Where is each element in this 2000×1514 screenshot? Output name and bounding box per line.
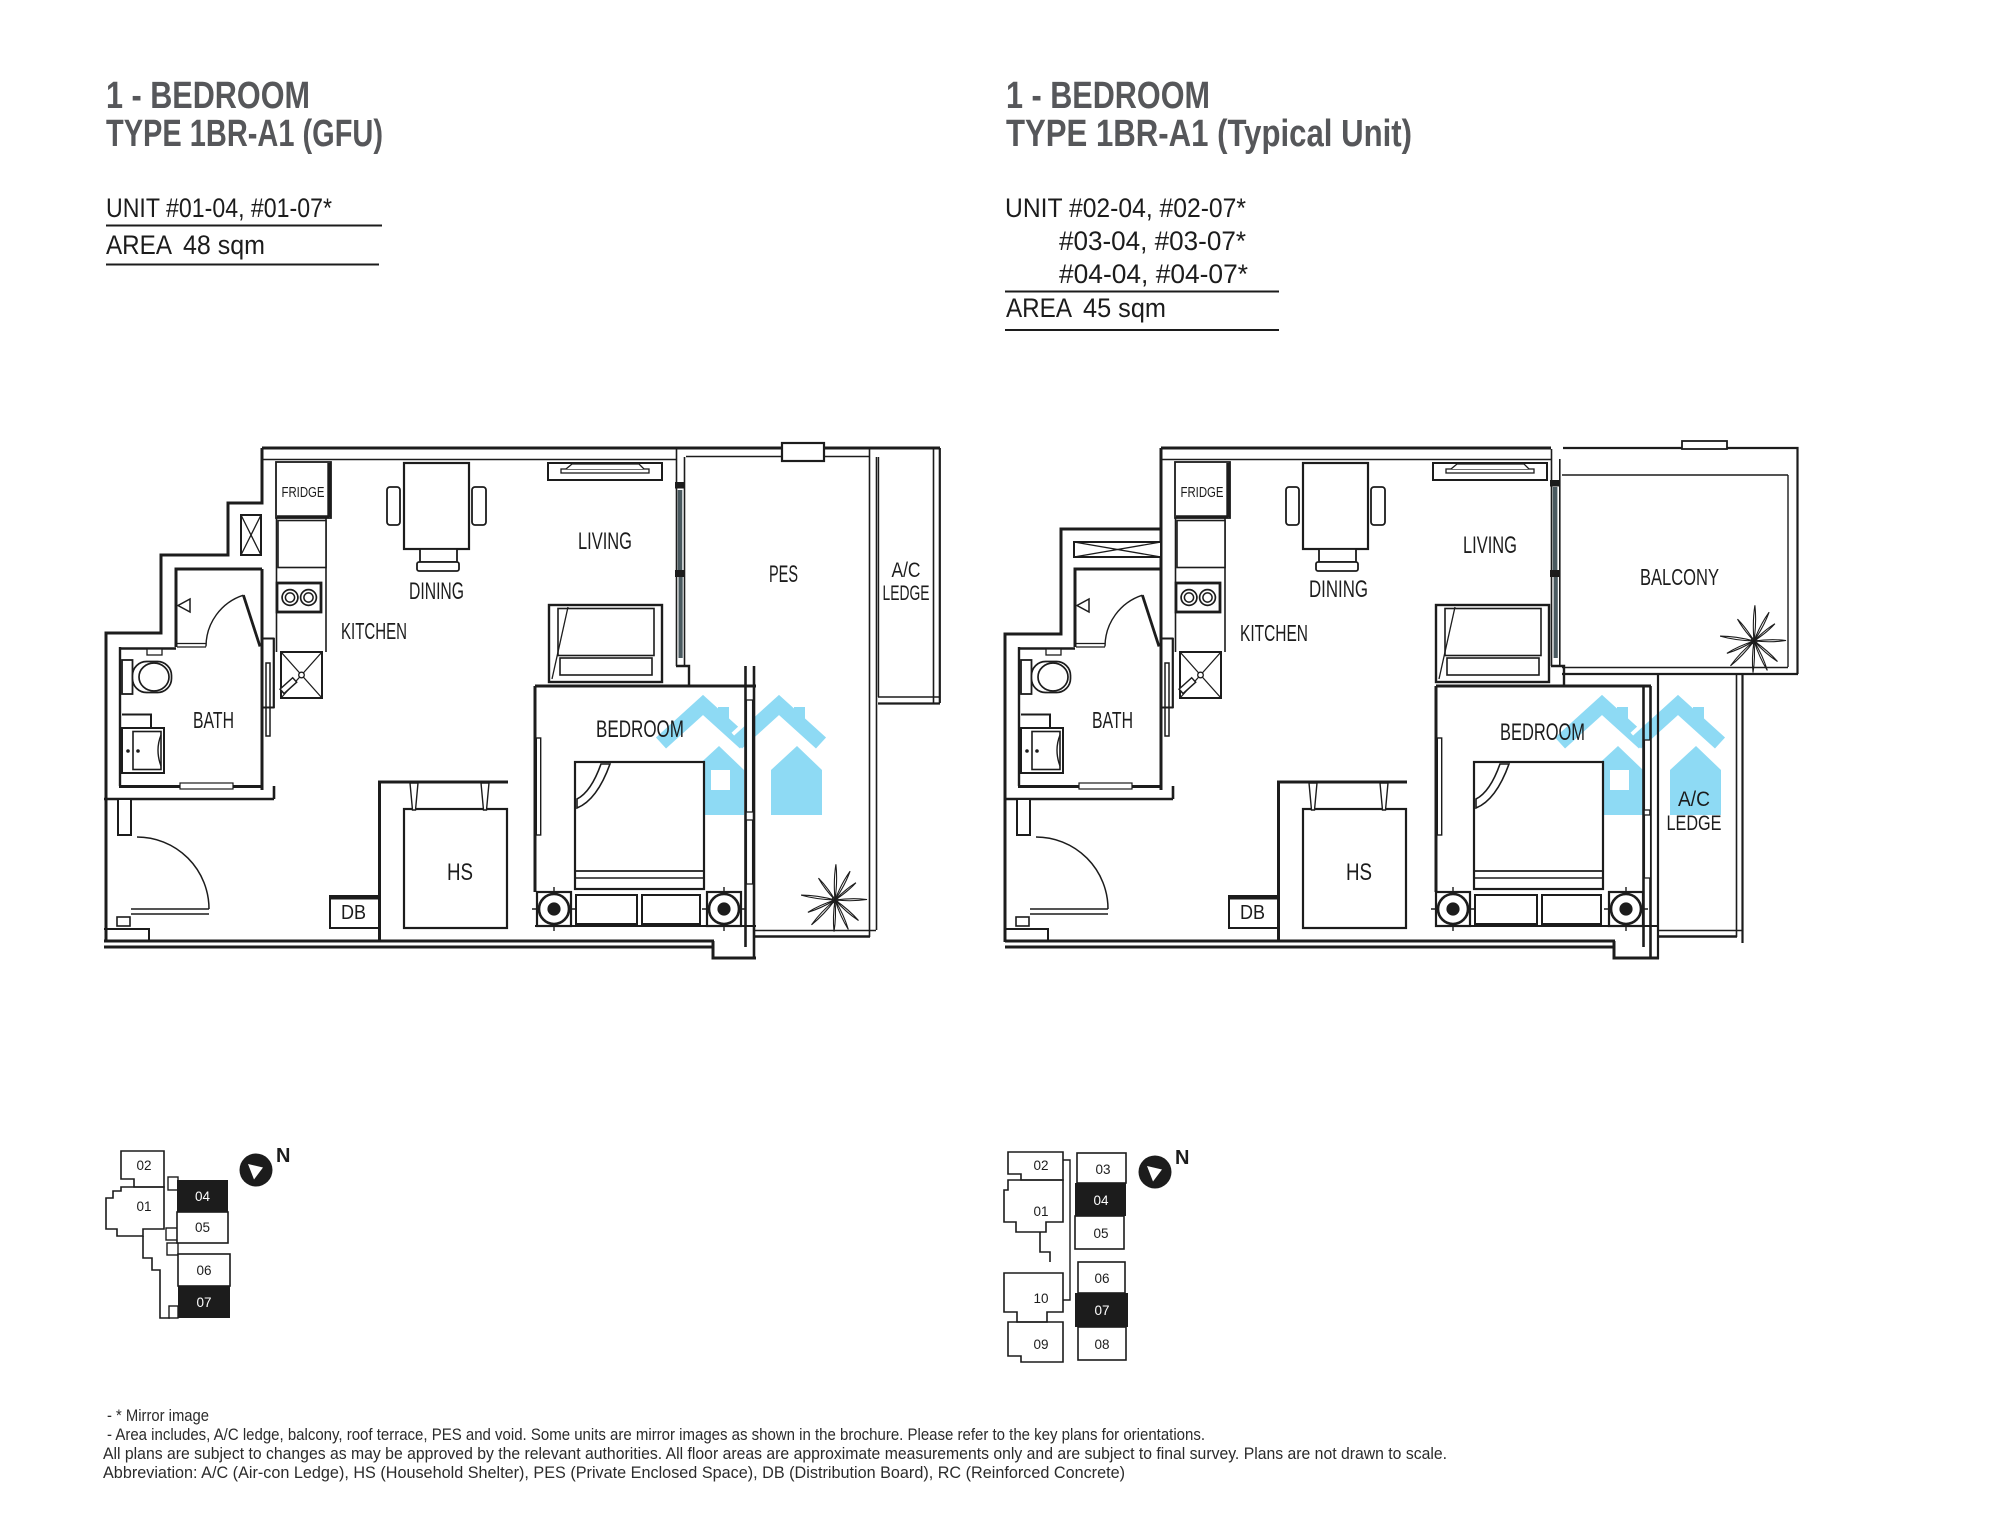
svg-text:DB: DB (341, 902, 366, 924)
svg-text:KITCHEN: KITCHEN (341, 618, 407, 644)
svg-text:1 - BEDROOM: 1 - BEDROOM (1006, 75, 1210, 117)
svg-text:UNIT #01-04, #01-07*: UNIT #01-04, #01-07* (106, 193, 332, 223)
svg-text:LIVING: LIVING (578, 528, 632, 555)
svg-text:- * Mirror image: - * Mirror image (107, 1406, 209, 1425)
svg-text:A/C: A/C (1678, 788, 1710, 811)
svg-text:LEDGE: LEDGE (883, 582, 930, 605)
svg-text:48 sqm: 48 sqm (183, 230, 265, 260)
svg-text:LIVING: LIVING (1463, 532, 1517, 559)
svg-text:07: 07 (1094, 1303, 1109, 1318)
svg-text:LEDGE: LEDGE (1667, 812, 1722, 835)
svg-text:DB: DB (1240, 902, 1265, 924)
svg-text:BEDROOM: BEDROOM (596, 716, 684, 743)
svg-text:TYPE 1BR-A1 (GFU): TYPE 1BR-A1 (GFU) (106, 113, 383, 155)
svg-text:1 - BEDROOM: 1 - BEDROOM (106, 75, 310, 117)
svg-text:08: 08 (1094, 1337, 1109, 1352)
svg-text:05: 05 (195, 1220, 210, 1235)
svg-text:Abbreviation: A/C (Air-con Led: Abbreviation: A/C (Air-con Ledge), HS (H… (103, 1463, 1125, 1482)
svg-text:03: 03 (1095, 1162, 1110, 1177)
svg-text:04: 04 (195, 1189, 211, 1204)
svg-text:DINING: DINING (1309, 576, 1368, 603)
svg-text:AREA: AREA (106, 230, 172, 260)
svg-text:02: 02 (136, 1158, 151, 1173)
svg-text:45 sqm: 45 sqm (1083, 293, 1166, 323)
svg-text:07: 07 (196, 1295, 211, 1310)
svg-text:01: 01 (1033, 1204, 1048, 1219)
svg-text:04: 04 (1093, 1193, 1109, 1208)
svg-text:BALCONY: BALCONY (1640, 564, 1719, 590)
svg-text:BEDROOM: BEDROOM (1500, 719, 1585, 746)
svg-text:UNIT #02-04, #02-07*: UNIT #02-04, #02-07* (1005, 193, 1246, 223)
svg-text:06: 06 (1094, 1271, 1109, 1286)
svg-text:BATH: BATH (1092, 707, 1133, 733)
svg-text:#04-04, #04-07*: #04-04, #04-07* (1059, 259, 1248, 289)
svg-text:06: 06 (196, 1263, 211, 1278)
svg-text:TYPE 1BR-A1 (Typical Unit): TYPE 1BR-A1 (Typical Unit) (1006, 113, 1412, 155)
svg-text:HS: HS (447, 859, 473, 886)
svg-text:KITCHEN: KITCHEN (1240, 620, 1308, 646)
svg-text:AREA: AREA (1006, 293, 1072, 323)
svg-text:10: 10 (1033, 1291, 1048, 1306)
svg-text:05: 05 (1093, 1226, 1108, 1241)
svg-text:#03-04, #03-07*: #03-04, #03-07* (1059, 226, 1246, 256)
svg-text:All plans are subject to chang: All plans are subject to changes as may … (103, 1444, 1447, 1463)
svg-text:09: 09 (1033, 1337, 1048, 1352)
svg-text:BATH: BATH (193, 707, 234, 733)
svg-text:02: 02 (1033, 1158, 1048, 1173)
svg-text:DINING: DINING (409, 578, 464, 605)
svg-text:- Area includes, A/C ledge, ba: - Area includes, A/C ledge, balcony, roo… (107, 1425, 1205, 1444)
svg-text:HS: HS (1346, 859, 1372, 886)
svg-text:01: 01 (136, 1199, 151, 1214)
svg-text:A/C: A/C (892, 559, 921, 582)
svg-text:PES: PES (769, 561, 798, 588)
